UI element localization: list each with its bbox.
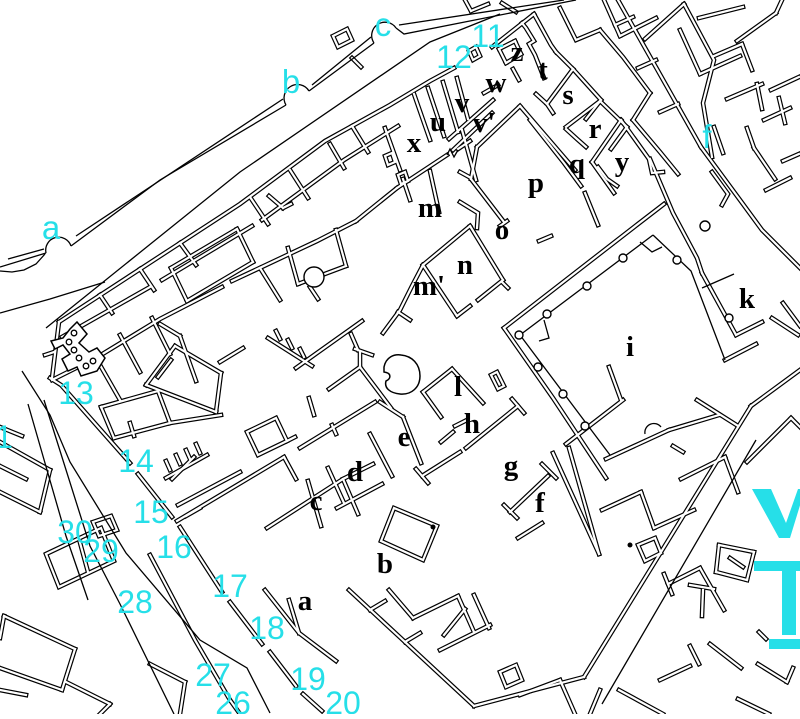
svg-text:e: e	[398, 421, 411, 453]
svg-text:v: v	[455, 87, 470, 119]
svg-text:17: 17	[212, 568, 248, 604]
svg-text:s: s	[562, 79, 573, 111]
svg-text:b: b	[377, 548, 393, 580]
svg-text:28: 28	[117, 584, 153, 620]
svg-text:i: i	[626, 331, 634, 363]
svg-text:k: k	[739, 283, 756, 315]
svg-text:v': v'	[473, 107, 496, 139]
svg-text:11: 11	[471, 18, 504, 54]
svg-text:19: 19	[290, 661, 326, 697]
svg-text:y: y	[615, 146, 630, 178]
svg-text:m: m	[418, 192, 442, 224]
svg-text:a: a	[42, 209, 61, 246]
svg-text:18: 18	[249, 610, 285, 646]
svg-text:f: f	[702, 118, 712, 155]
svg-text:n: n	[457, 249, 473, 281]
svg-text:x: x	[407, 127, 422, 159]
svg-text:z: z	[511, 36, 524, 68]
svg-text:16: 16	[156, 529, 192, 565]
svg-text:l: l	[454, 371, 462, 403]
svg-text:c: c	[310, 485, 323, 517]
svg-text:f: f	[535, 487, 545, 519]
svg-text:1: 1	[0, 419, 13, 455]
svg-text:14: 14	[118, 443, 154, 479]
svg-text:t: t	[538, 54, 548, 86]
svg-text:d: d	[347, 456, 363, 488]
svg-text:o: o	[495, 214, 510, 246]
svg-text:w: w	[486, 67, 507, 99]
svg-text:26: 26	[215, 685, 251, 714]
svg-text:b: b	[282, 63, 300, 100]
svg-text:m': m'	[413, 270, 445, 302]
svg-text:h: h	[464, 408, 480, 440]
svg-text:q: q	[569, 148, 585, 180]
svg-text:13: 13	[58, 375, 94, 411]
svg-text:g: g	[504, 450, 519, 482]
svg-text:20: 20	[325, 685, 361, 714]
svg-text:u: u	[430, 106, 446, 138]
svg-text:a: a	[298, 585, 313, 617]
svg-text:r: r	[589, 113, 602, 145]
svg-text:15: 15	[133, 494, 169, 530]
svg-text:c: c	[375, 6, 392, 43]
svg-text:29: 29	[83, 533, 119, 569]
svg-text:12: 12	[436, 39, 472, 75]
svg-text:p: p	[528, 167, 544, 199]
